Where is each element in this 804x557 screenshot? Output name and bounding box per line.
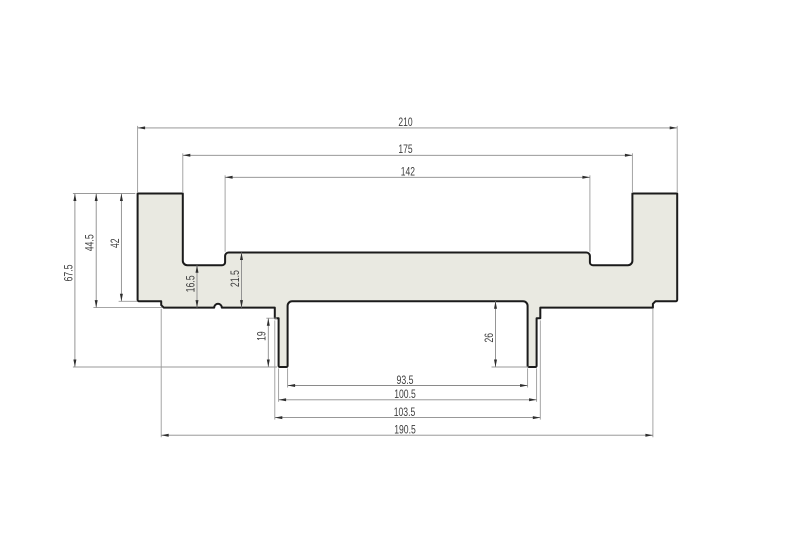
svg-text:21.5: 21.5 [230,270,242,287]
svg-text:190.5: 190.5 [394,424,416,436]
svg-text:142: 142 [401,167,415,179]
svg-text:67.5: 67.5 [63,265,75,282]
svg-text:93.5: 93.5 [397,375,414,387]
svg-text:103.5: 103.5 [394,407,416,419]
svg-text:42: 42 [110,239,122,249]
svg-text:19: 19 [257,331,269,341]
svg-text:175: 175 [398,144,412,156]
svg-text:26: 26 [484,333,496,343]
svg-text:16.5: 16.5 [185,275,197,292]
svg-text:100.5: 100.5 [394,389,416,401]
svg-text:210: 210 [398,117,412,129]
svg-text:44.5: 44.5 [85,234,97,251]
